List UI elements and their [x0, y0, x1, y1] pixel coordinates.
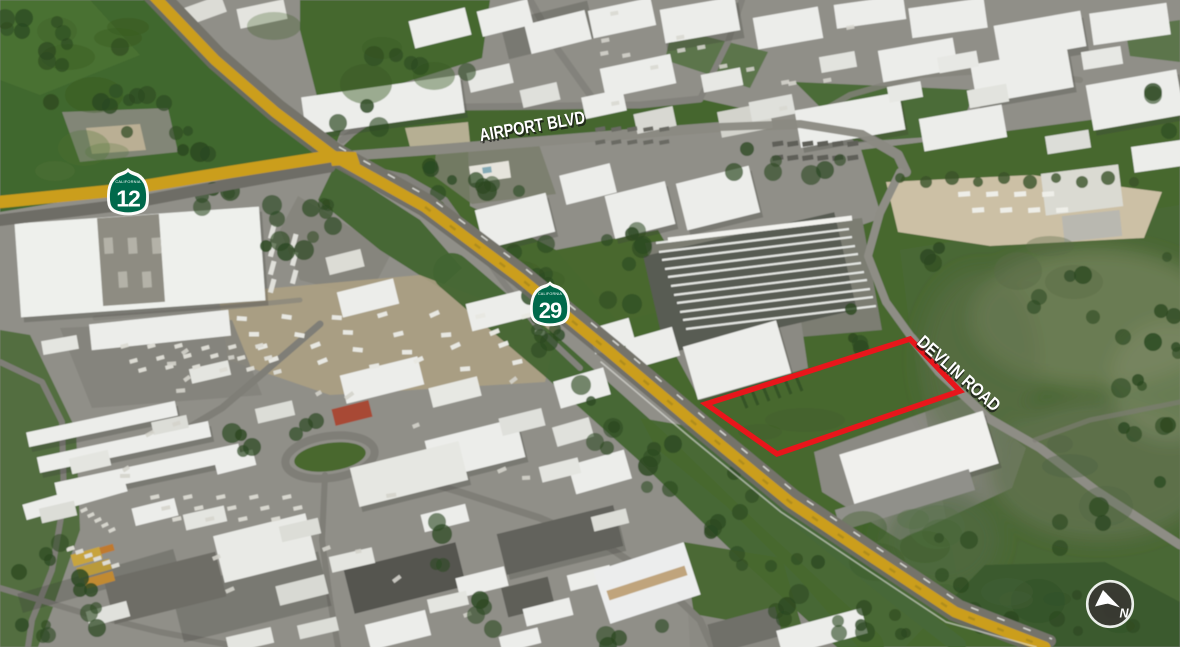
svg-text:12: 12 [116, 186, 140, 212]
svg-text:N: N [1120, 607, 1130, 621]
svg-text:CALIFORNIA: CALIFORNIA [538, 292, 562, 296]
svg-text:CALIFORNIA: CALIFORNIA [115, 179, 141, 184]
svg-text:29: 29 [539, 298, 562, 323]
